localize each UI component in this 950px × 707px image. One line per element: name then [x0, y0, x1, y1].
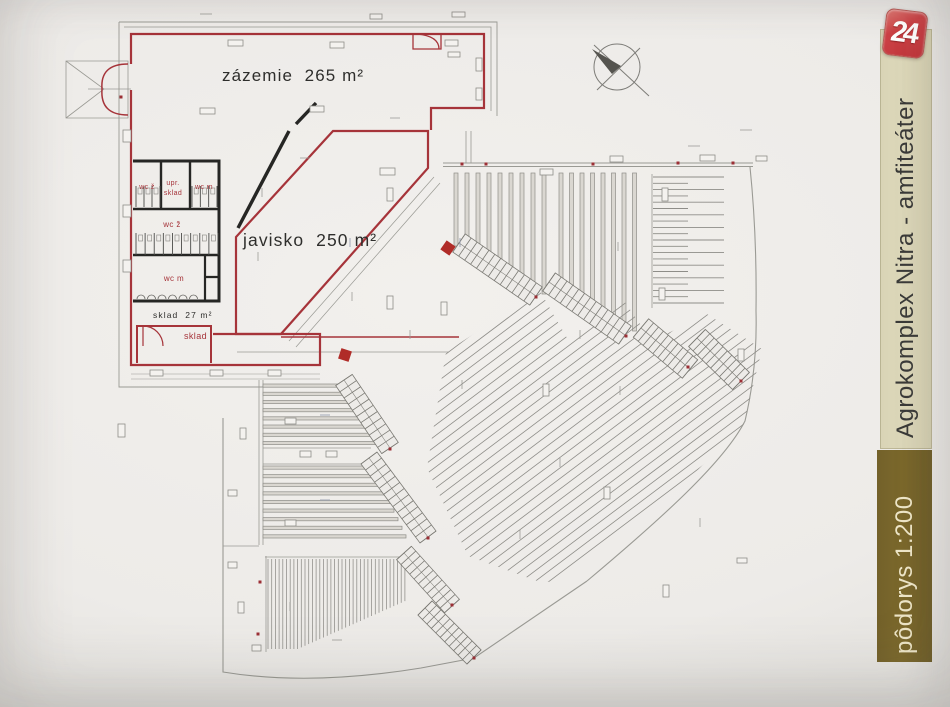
plan-title: Agrokomplex Nitra - amfiteáter — [881, 20, 931, 448]
label-wc-men-top: wc m — [194, 184, 213, 191]
door-arc — [143, 326, 163, 346]
label-upr-2: sklad — [164, 190, 182, 197]
floor-plan-photo: zázemie 265 m² javisko 250 m² sklad 27 m… — [0, 0, 950, 707]
notch-door — [413, 34, 441, 49]
label-upr-1: upr. — [166, 180, 179, 187]
sidebar-scale-strip: pôdorys 1:200 — [877, 450, 932, 662]
plan-scale: pôdorys 1:200 — [877, 442, 932, 662]
entrance-door-arcs — [102, 64, 128, 115]
compass-north-icon — [592, 44, 649, 96]
label-wc-women-top: wc ž — [138, 184, 155, 191]
sidebar-title-strip: Agrokomplex Nitra - amfiteáter — [880, 29, 932, 449]
logo-24-text: 24 — [888, 16, 922, 52]
label-javisko: javisko 250 m² — [242, 230, 377, 250]
label-sklad-area: sklad 27 m² — [153, 310, 213, 320]
label-wc-men-main: wc m — [163, 274, 184, 283]
label-wc-women-main: wc ž — [162, 220, 181, 229]
label-sklad-room: sklad — [184, 331, 207, 341]
nitra24-logo: 24 — [881, 8, 928, 60]
floor-plan-drawing: zázemie 265 m² javisko 250 m² sklad 27 m… — [0, 0, 950, 707]
label-zazemie: zázemie 265 m² — [222, 66, 364, 85]
